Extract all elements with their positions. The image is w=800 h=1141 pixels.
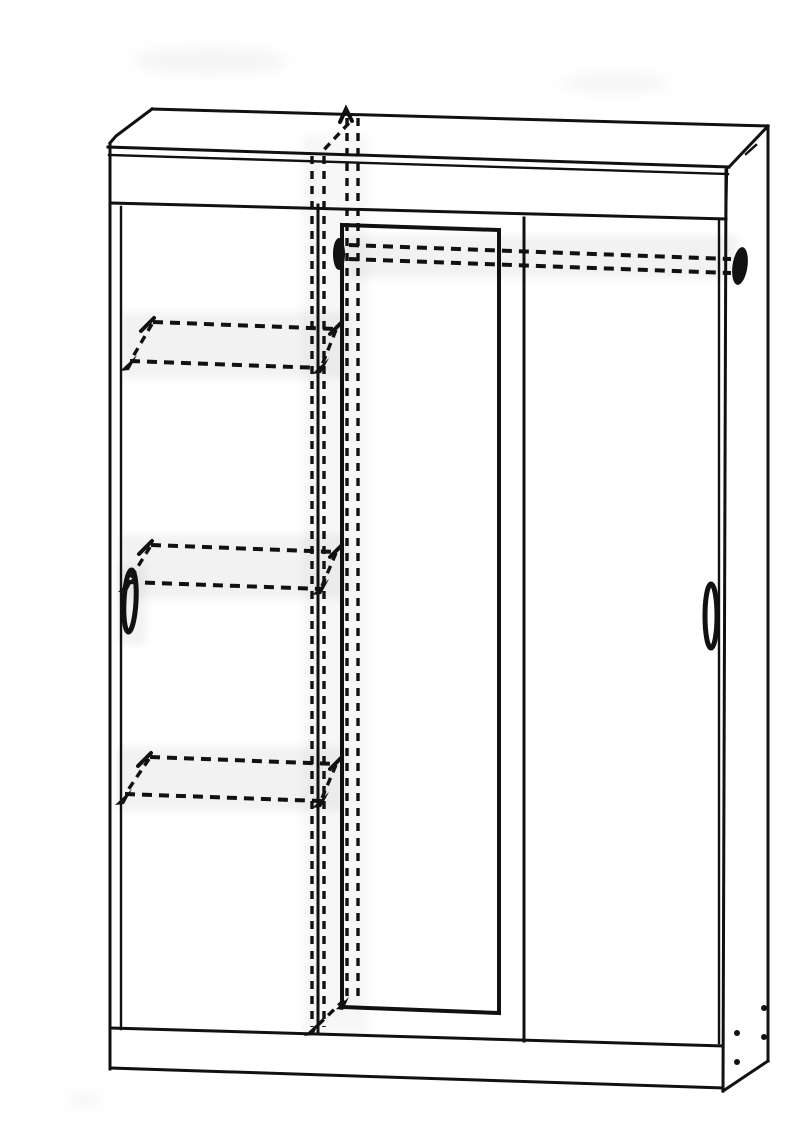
wardrobe-diagram-svg: Wardrobe line drawing Perspective line d… xyxy=(40,16,800,1125)
wardrobe-diagram: Wardrobe line drawing Perspective line d… xyxy=(40,16,800,1125)
rail-bracket-left xyxy=(333,238,345,270)
